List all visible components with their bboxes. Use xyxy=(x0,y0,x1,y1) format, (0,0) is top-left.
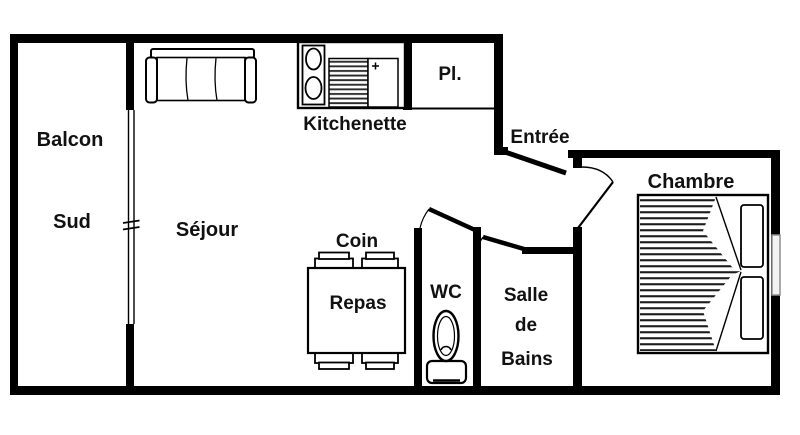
label-placard: Pl. xyxy=(438,64,461,85)
label-balcon: Balcon xyxy=(37,129,104,151)
pillow-bottom xyxy=(741,277,763,339)
doors xyxy=(420,152,613,249)
bains-door-leaf xyxy=(483,237,524,249)
sink-drainboard xyxy=(329,59,368,108)
sofa xyxy=(146,49,256,103)
label-balcon-sud: Sud xyxy=(53,211,91,233)
window-tick-1 xyxy=(123,221,140,224)
chair-top-right-back xyxy=(366,253,394,260)
label-de: de xyxy=(515,315,537,336)
wall-bains-top xyxy=(522,247,578,254)
label-repas: Repas xyxy=(329,293,386,314)
label-sejour: Séjour xyxy=(176,219,238,241)
chambre-door-leaf xyxy=(578,182,613,228)
wall-top xyxy=(10,34,503,43)
label-kitchenette: Kitchenette xyxy=(303,114,406,135)
chair-bottom-left-back xyxy=(319,363,349,370)
kitchenette-counter xyxy=(298,42,405,108)
wall-balcony-lower xyxy=(126,324,134,386)
toilet xyxy=(427,311,466,383)
floor-plan-svg: Balcon Sud Séjour Kitchenette Pl. Entrée… xyxy=(0,0,800,435)
chair-top-left-back xyxy=(319,253,349,260)
label-bains: Bains xyxy=(501,349,553,370)
chambre-window xyxy=(772,235,780,295)
sofa-armrest-right xyxy=(245,58,256,103)
label-salle: Salle xyxy=(504,285,548,306)
sofa-back xyxy=(151,49,254,58)
wall-left xyxy=(10,34,18,395)
wall-bottom xyxy=(10,386,780,395)
wall-bains-right xyxy=(573,227,582,386)
pillow-top xyxy=(741,205,763,267)
wall-chambre-door-stub xyxy=(573,158,582,168)
chambre-door-arc xyxy=(582,167,613,182)
wall-placard-right xyxy=(494,34,503,147)
label-coin: Coin xyxy=(336,231,378,252)
bed xyxy=(638,195,768,353)
label-entree: Entrée xyxy=(510,127,569,148)
wc-door-leaf xyxy=(429,209,475,230)
balcony-window xyxy=(123,110,140,324)
label-chambre: Chambre xyxy=(648,171,735,193)
entrance-door-leaf xyxy=(505,152,566,173)
wall-chambre-top xyxy=(568,150,780,158)
wall-wc-right xyxy=(473,227,481,386)
wall-wc-left xyxy=(414,228,422,386)
wc-door-arc xyxy=(420,209,429,228)
sofa-armrest-left xyxy=(146,58,157,103)
floor-plan: Balcon Sud Séjour Kitchenette Pl. Entrée… xyxy=(0,0,800,435)
sofa-seat xyxy=(157,58,245,101)
wall-balcony-upper xyxy=(126,34,134,110)
chair-bottom-right-back xyxy=(366,363,394,370)
label-wc: WC xyxy=(430,282,462,303)
window-tick-2 xyxy=(123,227,140,230)
